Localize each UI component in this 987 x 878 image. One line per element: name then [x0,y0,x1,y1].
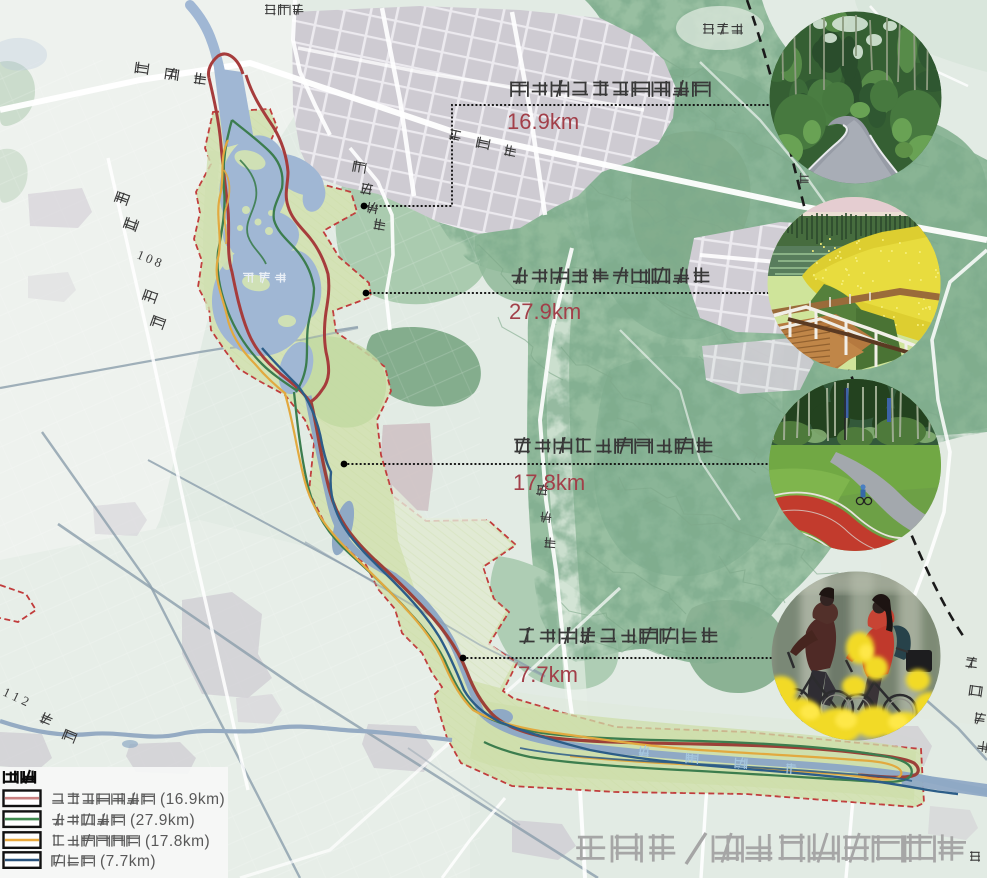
svg-text:(17.8km): (17.8km) [145,833,210,850]
svg-text:27.9km: 27.9km [509,299,581,324]
svg-text:(27.9km): (27.9km) [130,812,195,829]
svg-text:7.7km: 7.7km [518,662,578,687]
svg-text:17.8km: 17.8km [513,470,585,495]
svg-text:16.9km: 16.9km [507,109,579,134]
svg-text:(16.9km): (16.9km) [160,791,225,808]
svg-text:(7.7km): (7.7km) [100,853,156,870]
